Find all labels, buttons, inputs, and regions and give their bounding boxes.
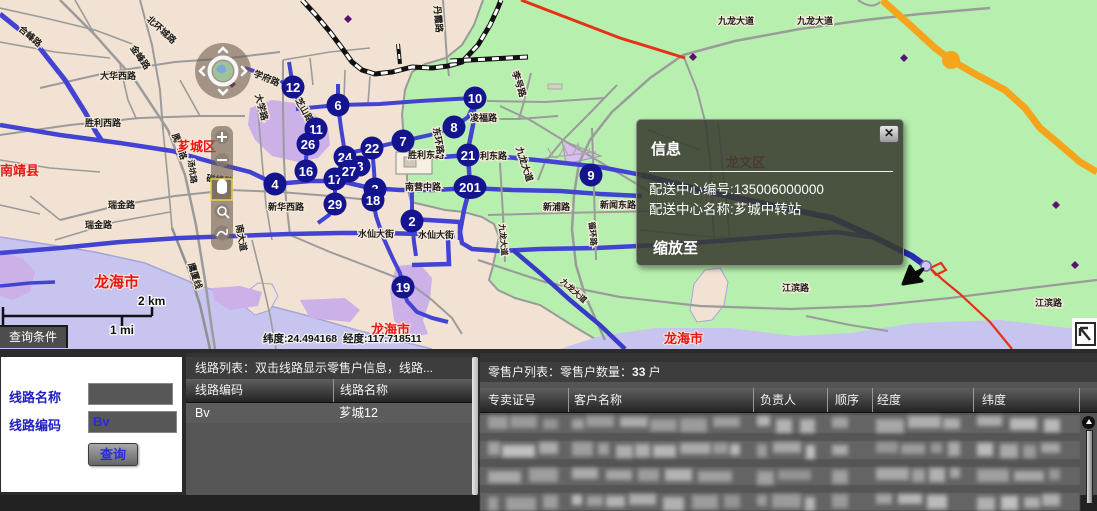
svg-text:江滨路: 江滨路 — [782, 282, 810, 293]
svg-text:九龙大道: 九龙大道 — [717, 15, 754, 26]
svg-text:18: 18 — [366, 193, 380, 208]
svg-text:芗城区: 芗城区 — [177, 139, 216, 154]
svg-text:新华西路: 新华西路 — [268, 201, 305, 212]
svg-text:大华西路: 大华西路 — [100, 70, 137, 81]
svg-text:南靖县: 南靖县 — [0, 163, 39, 178]
svg-text:7: 7 — [399, 134, 406, 149]
svg-text:16: 16 — [299, 164, 313, 179]
svg-text:利东路: 利东路 — [479, 150, 508, 161]
svg-text:龙海市: 龙海市 — [664, 331, 703, 346]
svg-text:瑞金路: 瑞金路 — [85, 219, 113, 230]
svg-text:2 km: 2 km — [138, 294, 165, 308]
svg-text:12: 12 — [286, 80, 300, 95]
svg-text:201: 201 — [459, 180, 481, 195]
svg-text:9: 9 — [587, 168, 594, 183]
svg-text:新闻东路: 新闻东路 — [600, 199, 637, 210]
svg-text:19: 19 — [396, 280, 410, 295]
svg-text:凌福路: 凌福路 — [470, 112, 498, 123]
svg-text:8: 8 — [450, 120, 457, 135]
svg-text:26: 26 — [301, 137, 315, 152]
svg-text:南营中路: 南营中路 — [405, 181, 442, 192]
svg-text:纬度:24.494168 经度:117.718511: 纬度:24.494168 经度:117.718511 — [263, 332, 422, 345]
svg-text:4: 4 — [271, 177, 279, 192]
svg-text:29: 29 — [328, 197, 342, 212]
svg-text:2: 2 — [408, 214, 415, 229]
svg-text:胜利西路: 胜利西路 — [84, 117, 122, 128]
svg-text:江滨路: 江滨路 — [1035, 297, 1063, 308]
svg-text:九龙大道: 九龙大道 — [796, 15, 833, 26]
svg-text:新浦路: 新浦路 — [543, 201, 571, 212]
svg-text:1 mi: 1 mi — [110, 323, 134, 337]
svg-text:水仙大街: 水仙大街 — [358, 228, 394, 239]
svg-text:瑞金路: 瑞金路 — [108, 199, 136, 210]
svg-text:龙海市: 龙海市 — [93, 273, 139, 291]
svg-text:10: 10 — [468, 91, 482, 106]
svg-text:6: 6 — [334, 98, 341, 113]
svg-text:27: 27 — [342, 164, 356, 179]
svg-text:22: 22 — [365, 141, 379, 156]
svg-text:21: 21 — [461, 148, 475, 163]
svg-text:水仙大街: 水仙大街 — [418, 229, 454, 240]
